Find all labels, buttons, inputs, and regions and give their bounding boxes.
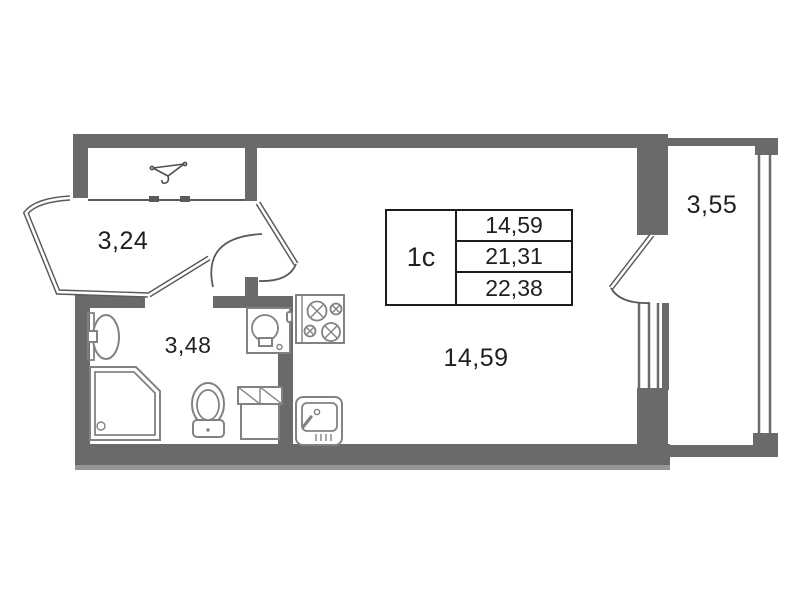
closet-left-wall — [73, 134, 88, 198]
balcony-corner-block-top — [755, 138, 778, 155]
kitchen-sink-icon — [296, 397, 342, 445]
storage-cabinet-icon — [238, 387, 282, 439]
stove-icon — [296, 295, 344, 343]
total-area-cell: 21,31 — [457, 242, 571, 273]
room-door — [258, 203, 296, 281]
unit-type-cell: 1с — [387, 211, 457, 304]
balcony-door-arc — [611, 288, 650, 303]
washing-machine-icon — [247, 308, 292, 353]
bottom-wall — [75, 444, 670, 465]
balcony-glazing — [759, 155, 770, 433]
area-summary-table: 1с 14,59 21,31 22,38 — [385, 209, 573, 306]
shower-cabin-icon — [90, 367, 160, 440]
bathroom-top-wall-left — [75, 296, 145, 308]
full-area-cell: 22,38 — [457, 273, 571, 304]
closet-right-wall — [245, 148, 257, 201]
door-jamb-stub — [245, 277, 258, 308]
balcony-bottom-band — [668, 445, 753, 457]
living-area-cell: 14,59 — [457, 211, 571, 242]
window-glazing — [639, 303, 669, 390]
bathroom-sink-icon — [88, 313, 119, 360]
hallway-area-label: 3,24 — [77, 227, 169, 256]
balcony-area-label: 3,55 — [665, 191, 759, 220]
right-wall-upper — [637, 134, 668, 235]
room-door-arc — [259, 264, 296, 281]
toilet-icon — [192, 383, 224, 437]
living-room-area-label: 14,59 — [428, 344, 524, 373]
bottom-wall-shadow — [75, 465, 670, 470]
bathroom-area-label: 3,48 — [142, 332, 234, 359]
floor-plan: 3,24 3,48 14,59 3,55 1с 14,59 21,31 22,3… — [0, 0, 799, 600]
top-wall — [73, 134, 668, 148]
balcony-corner-block-bottom — [753, 433, 778, 457]
wardrobe-hanger-icon — [150, 162, 186, 183]
closet-front — [88, 196, 245, 202]
balcony-door — [611, 235, 652, 303]
